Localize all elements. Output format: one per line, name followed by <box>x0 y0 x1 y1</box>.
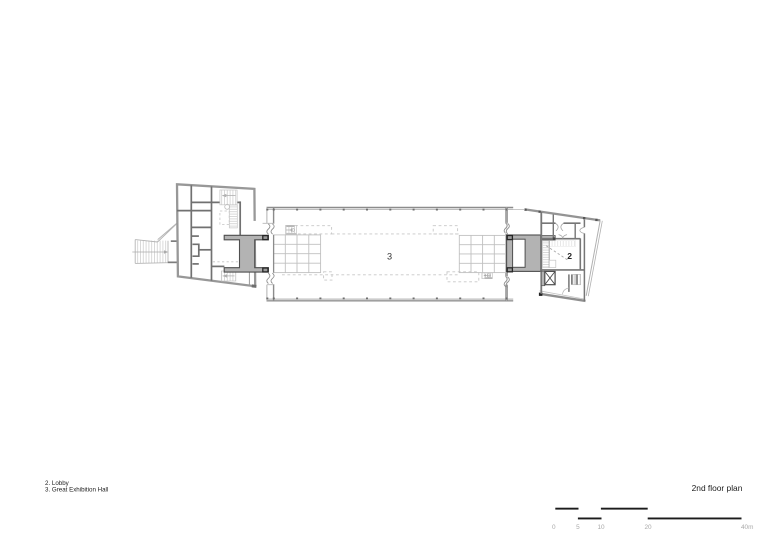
svg-text:20: 20 <box>644 524 652 531</box>
svg-text:3. Great Exhibition Hall: 3. Great Exhibition Hall <box>45 486 108 493</box>
svg-text:40m: 40m <box>741 524 753 531</box>
svg-text:5: 5 <box>576 524 580 531</box>
svg-text:3: 3 <box>387 251 392 261</box>
svg-text:0: 0 <box>552 524 556 531</box>
svg-text:2: 2 <box>567 251 572 261</box>
svg-text:10: 10 <box>597 524 605 531</box>
svg-text:2nd floor plan: 2nd floor plan <box>692 483 743 493</box>
